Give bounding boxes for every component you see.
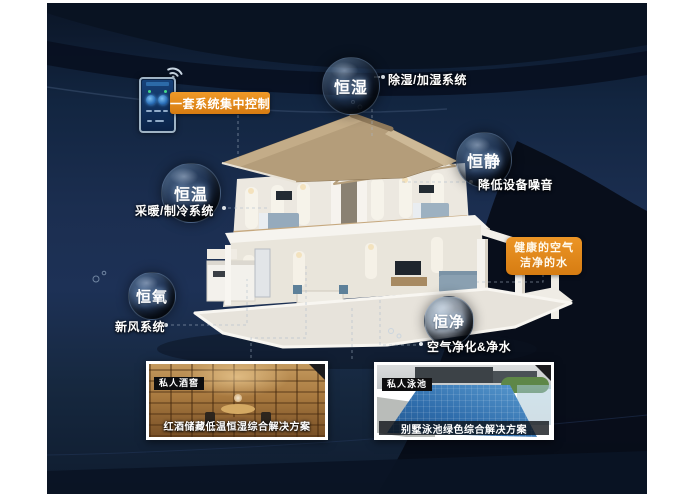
pool-photo: 私人泳池 别墅泳池绿色综合解决方案 <box>377 365 551 437</box>
phone-status-dot <box>148 90 151 93</box>
healthy-air-water-box: 健康的空气 洁净的水 <box>506 237 582 275</box>
desc-heating-cooling: 采暖/制冷系统 <box>135 202 214 219</box>
phone-ui-line <box>147 120 152 122</box>
bubble-constant-humidity-label: 恒湿 <box>334 74 368 98</box>
central-control-tag: 一套系统集中控制 <box>170 92 270 114</box>
bubble-constant-oxygen-label: 恒氧 <box>136 286 168 307</box>
wine-cellar-card: 私人酒窖 红酒储藏低温恒湿综合解决方案 <box>146 361 328 440</box>
corner-ribbon <box>309 364 325 380</box>
poster-canvas: 一套系统集中控制 恒湿 恒静 恒温 恒氧 恒净 除湿/加湿系统 降低设备噪音 采… <box>47 3 647 494</box>
phone-ui-line <box>163 110 168 112</box>
desc-dehumidify-system: 除湿/加湿系统 <box>388 71 467 88</box>
bubble-constant-quiet-label: 恒静 <box>467 148 501 172</box>
phone-ui-line <box>146 110 152 112</box>
phone-ui-line <box>155 120 164 122</box>
wine-cellar-photo: 私人酒窖 红酒储藏低温恒湿综合解决方案 <box>149 364 325 437</box>
wine-table <box>221 404 255 414</box>
phone-app-header <box>146 82 169 86</box>
wine-flower-vase <box>234 394 242 402</box>
wine-card-caption: 红酒储藏低温恒湿综合解决方案 <box>149 418 325 433</box>
desc-noise-reduction: 降低设备噪音 <box>478 176 553 193</box>
corner-ribbon <box>535 365 551 381</box>
healthy-air-line: 健康的空气 <box>514 241 574 256</box>
bubble-constant-clean-label: 恒净 <box>433 311 465 332</box>
pool-card: 私人泳池 别墅泳池绿色综合解决方案 <box>374 362 554 440</box>
phone-screen <box>142 80 173 130</box>
phone-dial-control <box>158 95 168 105</box>
desc-purification: 空气净化&净水 <box>427 338 511 355</box>
phone-ui-line <box>154 110 161 112</box>
wine-card-tag: 私人酒窖 <box>154 377 204 390</box>
clean-water-line: 洁净的水 <box>520 256 568 271</box>
pool-card-tag: 私人泳池 <box>382 378 432 391</box>
phone-status-dot <box>164 90 167 93</box>
poster-stage: 一套系统集中控制 恒湿 恒静 恒温 恒氧 恒净 除湿/加湿系统 降低设备噪音 采… <box>0 0 700 497</box>
bubble-constant-oxygen: 恒氧 <box>128 272 176 320</box>
pool-card-caption: 别墅泳池绿色综合解决方案 <box>379 421 549 435</box>
desc-fresh-air: 新风系统 <box>115 318 165 335</box>
bubble-constant-humidity: 恒湿 <box>322 57 380 115</box>
phone-dial-control <box>146 95 156 105</box>
